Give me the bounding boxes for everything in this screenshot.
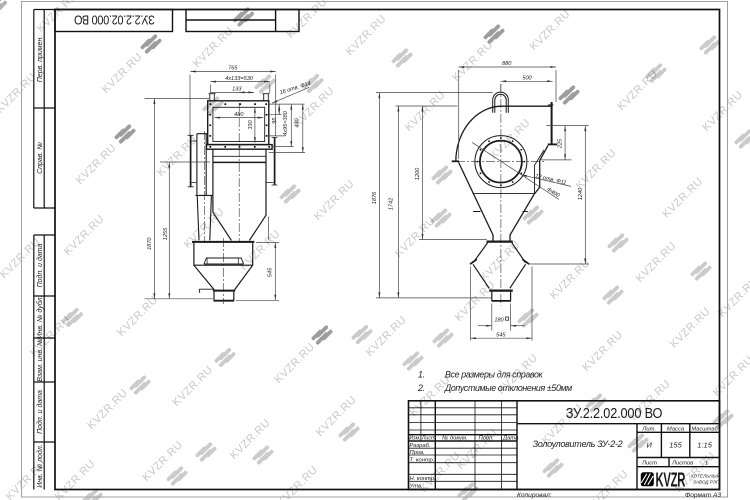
svg-text:KVZR.RU: KVZR.RU xyxy=(100,51,145,96)
svg-text:KVZR.RU: KVZR.RU xyxy=(74,142,119,187)
svg-text:Подп. и дата: Подп. и дата xyxy=(36,390,44,434)
svg-text:KVZR.RU: KVZR.RU xyxy=(238,228,283,273)
svg-text:Все размеры для справок: Все размеры для справок xyxy=(445,370,543,380)
svg-text:KVZR.RU: KVZR.RU xyxy=(450,39,495,84)
svg-text:ЗАВОД РЭП: ЗАВОД РЭП xyxy=(693,480,720,485)
svg-text:1.: 1. xyxy=(418,370,425,380)
svg-text:1200: 1200 xyxy=(415,167,421,180)
svg-text:225: 225 xyxy=(558,138,564,149)
svg-text:KVZR.RU: KVZR.RU xyxy=(35,0,80,35)
svg-text:180: 180 xyxy=(494,318,504,324)
svg-text:Формат А3: Формат А3 xyxy=(685,492,721,499)
svg-text:Масса: Масса xyxy=(667,426,685,432)
svg-text:2.: 2. xyxy=(417,383,425,393)
svg-text:Разраб.: Разраб. xyxy=(410,443,431,449)
svg-text:480: 480 xyxy=(234,112,244,118)
svg-text:KVZR.RU: KVZR.RU xyxy=(453,279,498,324)
svg-text:KVZR.RU: KVZR.RU xyxy=(668,305,713,350)
svg-text:Ф400: Ф400 xyxy=(545,187,561,200)
svg-text:KVZR.RU: KVZR.RU xyxy=(408,374,453,419)
svg-text:155: 155 xyxy=(669,441,682,450)
svg-text:KVZR.RU: KVZR.RU xyxy=(170,364,215,409)
svg-text:Дата: Дата xyxy=(502,435,519,441)
svg-text:Инв. № дубл.: Инв. № дубл. xyxy=(36,295,44,338)
svg-text:1255: 1255 xyxy=(163,227,169,240)
svg-text:Подп. и дата: Подп. и дата xyxy=(36,243,44,287)
svg-text:KVZR.RU: KVZR.RU xyxy=(403,89,448,134)
svg-text:Копировал:: Копировал: xyxy=(517,492,552,499)
svg-text:KVZR.RU: KVZR.RU xyxy=(275,464,320,500)
svg-text:1876: 1876 xyxy=(372,191,378,204)
svg-text:KVZR.RU: KVZR.RU xyxy=(155,134,200,179)
svg-text:Пров.: Пров. xyxy=(410,450,425,456)
svg-text:И: И xyxy=(647,441,653,450)
svg-text:KVZR.RU: KVZR.RU xyxy=(574,147,619,192)
svg-text:1870: 1870 xyxy=(147,237,153,250)
svg-text:4х95=380: 4х95=380 xyxy=(283,110,289,136)
svg-text:КОТЕЛЬНЫЙ: КОТЕЛЬНЫЙ xyxy=(691,472,721,479)
svg-text:430: 430 xyxy=(295,117,301,127)
svg-text:Т. контр.: Т. контр. xyxy=(410,458,435,464)
svg-text:Лит.: Лит. xyxy=(641,426,656,432)
svg-text:ЗУ.2.2.02.000 ВО: ЗУ.2.2.02.000 ВО xyxy=(566,404,663,421)
svg-text:KVZR.RU: KVZR.RU xyxy=(115,294,160,339)
svg-text:Утв.: Утв. xyxy=(409,484,423,490)
svg-text:Перв. примен.: Перв. примен. xyxy=(37,36,44,83)
svg-text:KVZR.RU: KVZR.RU xyxy=(272,341,317,386)
svg-text:KVZR.RU: KVZR.RU xyxy=(364,314,409,359)
svg-text:Взам. инв. №: Взам. инв. № xyxy=(37,338,44,382)
svg-text:KVZR.RU: KVZR.RU xyxy=(62,213,107,258)
svg-text:Н. контр.: Н. контр. xyxy=(410,476,436,482)
svg-text:Допустимые отклонения ±50мм: Допустимые отклонения ±50мм xyxy=(444,383,572,393)
svg-text:Золоуловитель ЗУ-2-2: Золоуловитель ЗУ-2-2 xyxy=(533,439,623,449)
svg-text:KVZR: KVZR xyxy=(656,468,686,492)
svg-text:ЗУ.2.2.02.000 ВО: ЗУ.2.2.02.000 ВО xyxy=(74,12,155,26)
svg-text:KVZR.RU: KVZR.RU xyxy=(0,71,39,116)
svg-text:Справ. №: Справ. № xyxy=(37,142,44,174)
svg-text:Инв. № подл.: Инв. № подл. xyxy=(36,444,44,487)
svg-text:765: 765 xyxy=(228,65,238,71)
svg-text:500: 500 xyxy=(522,75,532,81)
svg-text:KVZR.RU: KVZR.RU xyxy=(660,175,705,220)
svg-text:KVZR.RU: KVZR.RU xyxy=(580,329,625,374)
svg-text:KVZR.RU: KVZR.RU xyxy=(478,239,523,284)
svg-text:880: 880 xyxy=(502,61,512,67)
svg-text:KVZR.RU: KVZR.RU xyxy=(312,178,357,223)
svg-text:1: 1 xyxy=(705,461,708,467)
svg-text:95: 95 xyxy=(272,117,278,124)
svg-text:Лист: Лист xyxy=(421,435,436,441)
svg-text:330: 330 xyxy=(248,119,254,129)
svg-text:4х133=530: 4х133=530 xyxy=(225,76,254,82)
svg-text:1:15: 1:15 xyxy=(697,441,712,450)
svg-text:KVZR.RU: KVZR.RU xyxy=(700,89,745,134)
svg-text:KVZR.RU: KVZR.RU xyxy=(455,427,500,472)
svg-text:Изм.: Изм. xyxy=(409,435,420,441)
svg-text:KVZR.RU: KVZR.RU xyxy=(285,0,330,41)
svg-text:545: 545 xyxy=(267,267,273,277)
svg-text:KVZR.RU: KVZR.RU xyxy=(711,354,750,399)
svg-text:1742: 1742 xyxy=(389,197,395,210)
svg-text:KVZR.RU: KVZR.RU xyxy=(716,275,750,320)
svg-text:№ докум.: № докум. xyxy=(442,435,468,441)
svg-text:KVZR.RU: KVZR.RU xyxy=(344,13,389,58)
svg-text:Лист: Лист xyxy=(641,461,657,467)
svg-text:Подп.: Подп. xyxy=(479,435,494,441)
svg-text:KVZR.RU: KVZR.RU xyxy=(85,387,130,432)
svg-text:KVZR.RU: KVZR.RU xyxy=(634,240,679,285)
svg-text:Масштаб: Масштаб xyxy=(692,426,719,432)
svg-text:KVZR.RU: KVZR.RU xyxy=(548,257,593,302)
svg-text:KVZR.RU: KVZR.RU xyxy=(586,468,631,500)
svg-text:545: 545 xyxy=(496,332,506,338)
svg-text:133: 133 xyxy=(232,87,242,93)
svg-text:1240: 1240 xyxy=(578,187,584,200)
svg-text:Листов: Листов xyxy=(671,461,693,467)
svg-text:KVZR.RU: KVZR.RU xyxy=(528,8,573,53)
